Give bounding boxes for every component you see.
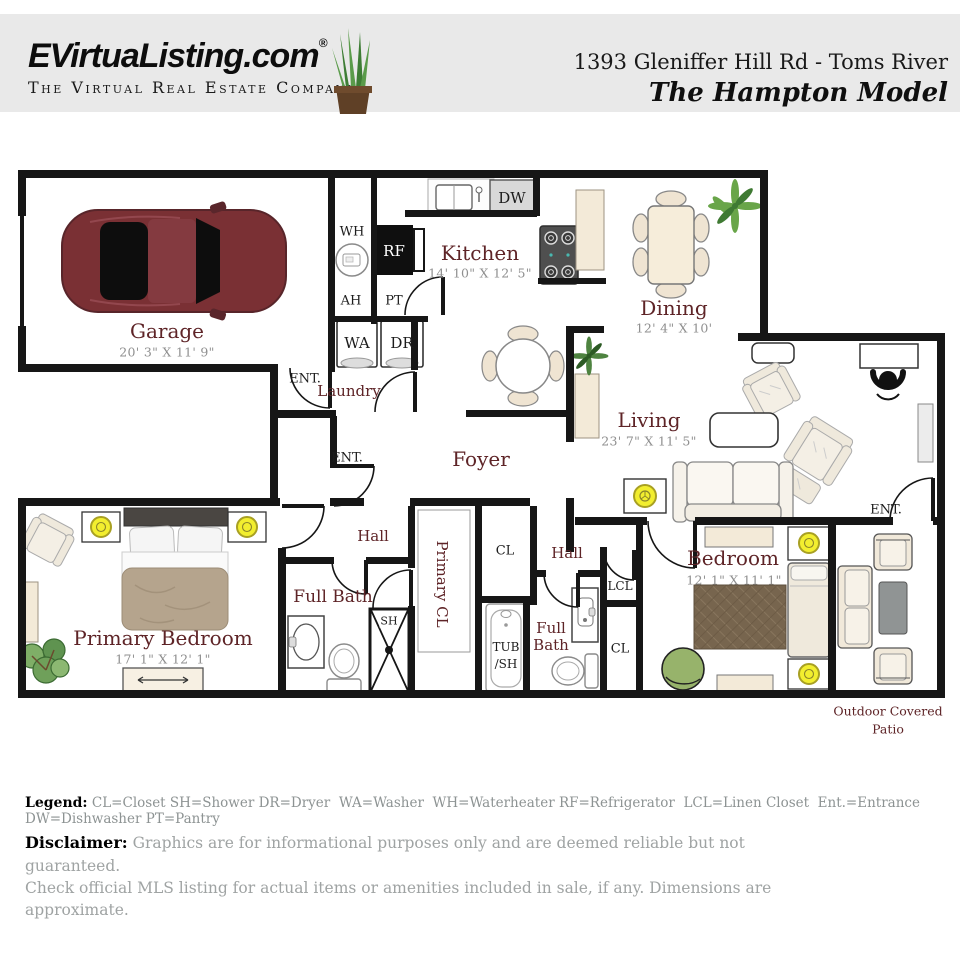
patio-bench <box>838 566 872 648</box>
entrance-tag-patio: ENT. <box>870 503 902 518</box>
disclaimer-title: Disclaimer: <box>25 833 128 852</box>
kitchen-counter <box>576 190 604 270</box>
dining-table-icon <box>633 191 709 298</box>
primary-bath-vanity <box>288 616 324 668</box>
disclaimer: Disclaimer: Graphics are for information… <box>25 832 825 921</box>
primary-nightstand-right <box>228 512 266 542</box>
primary-bedroom-label: Primary Bedroom <box>73 626 252 650</box>
legend-title: Legend: <box>25 795 88 811</box>
dishwasher-tag: DW <box>498 189 525 207</box>
primary-nightstand-left <box>82 512 120 542</box>
breakfast-table-icon <box>482 326 564 406</box>
living-dims: 23' 7" X 11' 5" <box>601 434 696 449</box>
primary-dresser-bottom <box>123 668 203 692</box>
hall-left-label: Hall <box>357 527 389 545</box>
bedroom-bed <box>788 563 830 657</box>
bedroom-rug <box>694 585 786 649</box>
bedroom-nightstand-top <box>788 527 830 560</box>
lamp-table-living <box>624 479 666 513</box>
foyer-plant-icon <box>570 337 609 376</box>
linen-closet-tag: LCL <box>607 579 632 593</box>
floor-plan-page: EVirtuaListing.com® The Virtual Real Est… <box>0 0 960 960</box>
hall-bath-toilet <box>552 654 598 688</box>
patio-chair-bottom <box>874 648 912 684</box>
laundry-label: Laundry <box>317 382 380 400</box>
patio-label-line2: Patio <box>872 722 904 737</box>
legend-body: CL=Closet SH=Shower DR=Dryer WA=Washer W… <box>25 795 924 827</box>
disclaimer-line1: Graphics are for informational purposes … <box>25 834 745 875</box>
primary-bath-toilet <box>327 644 361 693</box>
entrance-tag-garage: ENT. <box>289 372 321 387</box>
hall-right-label: Hall <box>551 544 583 562</box>
coffee-table <box>710 413 778 447</box>
legend: Legend: CL=Closet SH=Shower DR=Dryer WA=… <box>25 795 937 827</box>
living-sofa <box>673 462 793 522</box>
shower-tag: SH <box>379 615 398 628</box>
primary-closet-label: Primary CL <box>433 540 451 627</box>
patio-table <box>879 582 907 634</box>
air-handler-tag: AH <box>341 294 362 309</box>
bedroom-dims: 12' 1" X 11' 1" <box>686 573 781 588</box>
primary-bath-label: Full Bath <box>293 587 372 607</box>
patio-chair-top <box>874 534 912 570</box>
tub-shower-tag: /SH <box>495 657 518 671</box>
refrigerator-tag: RF <box>383 242 405 260</box>
patio-label-line1: Outdoor Covered <box>833 704 942 719</box>
primary-bed <box>122 508 228 630</box>
water-heater-icon <box>336 244 368 276</box>
garage-dims: 20' 3" X 11' 9" <box>119 345 214 360</box>
beanbag-chair <box>662 648 704 690</box>
living-label: Living <box>617 408 680 432</box>
hall-bath-vanity <box>572 588 598 642</box>
tub-tag: TUB <box>493 640 520 654</box>
stove-icon <box>540 226 578 284</box>
garage-label: Garage <box>130 319 204 343</box>
wall-shelf <box>918 404 933 462</box>
kitchen-label: Kitchen <box>441 241 519 265</box>
primary-bedroom-dims: 17' 1" X 12' 1" <box>115 652 210 667</box>
foyer-console-table <box>575 374 599 438</box>
living-armchair-1 <box>738 359 801 420</box>
foyer-label: Foyer <box>452 447 510 471</box>
living-side-table <box>752 343 794 363</box>
dining-label: Dining <box>640 296 707 320</box>
washer-tag: WA <box>344 334 370 352</box>
bedroom-label: Bedroom <box>687 546 779 570</box>
closet-tag-2: CL <box>611 642 630 657</box>
primary-armchair <box>19 511 78 568</box>
car-top-view-icon <box>62 201 286 322</box>
dining-plant-icon <box>708 179 762 233</box>
closet-tag-1: CL <box>496 544 515 559</box>
dryer-tag: DR <box>390 334 413 352</box>
bedroom-nightstand-bottom <box>788 659 830 689</box>
desk-and-chair <box>860 344 918 399</box>
kitchen-sink-icon <box>428 179 494 215</box>
disclaimer-line2: Check official MLS listing for actual it… <box>25 877 825 921</box>
entrance-tag-foyer: ENT. <box>331 451 363 466</box>
kitchen-dims: 14' 10" X 12' 5" <box>428 266 532 281</box>
bedroom-dresser-bottom <box>717 675 773 691</box>
dining-dims: 12' 4" X 10' <box>636 321 713 336</box>
primary-plant-icon <box>20 639 69 683</box>
water-heater-tag: WH <box>340 225 365 240</box>
bedroom-dresser-top <box>705 527 773 547</box>
pantry-tag: PT <box>385 294 402 309</box>
hall-bath-label: Full Bath <box>528 620 574 655</box>
